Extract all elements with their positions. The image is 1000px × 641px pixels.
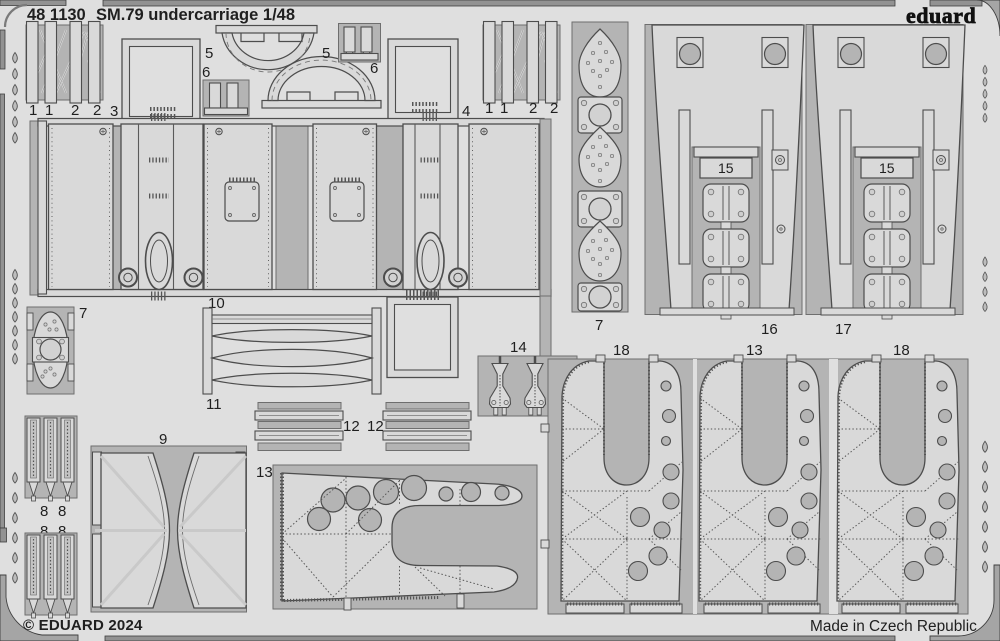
svg-text:1: 1 [500,100,508,117]
svg-text:14: 14 [510,339,527,356]
svg-text:13: 13 [746,342,763,359]
svg-text:1: 1 [485,100,493,117]
svg-text:2: 2 [71,102,79,119]
svg-text:2: 2 [550,100,558,117]
svg-text:18: 18 [893,342,910,359]
svg-text:13: 13 [256,464,273,481]
svg-text:2: 2 [529,100,537,117]
svg-text:9: 9 [159,431,167,448]
svg-text:7: 7 [79,305,87,322]
svg-text:8: 8 [40,503,48,520]
svg-text:1: 1 [29,102,37,119]
svg-text:5: 5 [322,45,330,62]
svg-text:8: 8 [58,503,66,520]
svg-text:SM.79 undercarriage 1/48: SM.79 undercarriage 1/48 [96,6,295,24]
svg-text:5: 5 [205,45,213,62]
svg-text:18: 18 [613,342,630,359]
svg-text:2: 2 [93,102,101,119]
svg-text:1: 1 [45,102,53,119]
svg-text:7: 7 [595,317,603,334]
svg-text:12: 12 [343,418,360,435]
svg-text:17: 17 [835,321,852,338]
svg-text:11: 11 [206,396,222,413]
svg-text:12: 12 [367,418,384,435]
svg-text:16: 16 [761,321,778,338]
svg-text:© EDUARD 2024: © EDUARD 2024 [23,617,143,634]
svg-text:6: 6 [202,64,210,81]
svg-text:Made in Czech Republic: Made in Czech Republic [810,618,977,635]
svg-text:6: 6 [370,60,378,77]
svg-text:4: 4 [462,103,470,120]
svg-text:3: 3 [110,103,118,120]
svg-text:15: 15 [718,160,734,176]
svg-text:15: 15 [879,160,895,176]
